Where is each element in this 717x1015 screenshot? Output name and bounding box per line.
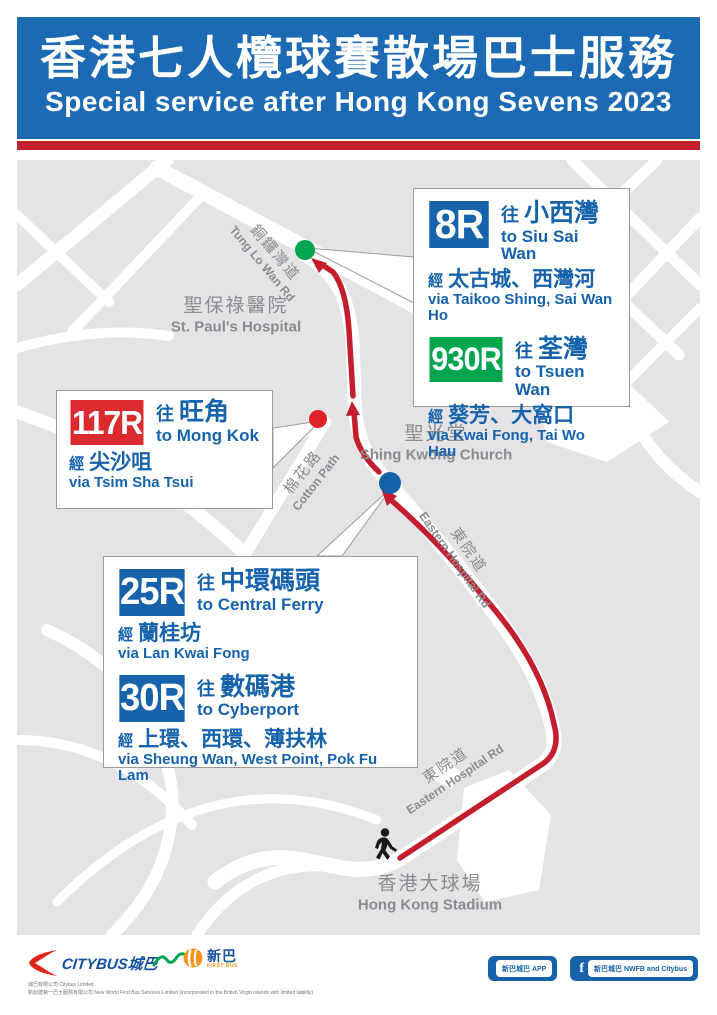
place-label-hong-kong-stadium: 香港大球場 Hong Kong Stadium	[358, 874, 502, 915]
citybus-swoosh-icon	[28, 949, 58, 977]
page-subtitle: Special service after Hong Kong Sevens 2…	[17, 86, 700, 118]
stop-dot-cotton-path	[309, 410, 327, 428]
destination-en: to Siu Sai Wan	[501, 228, 615, 263]
via-en: via Kwai Fong, Tai Wo Hau	[428, 428, 615, 460]
firstbus-logo-en: FIRST BUS	[207, 964, 238, 969]
fine-print: 城巴有限公司 Citybus Limited 新創建第一巴士服務有限公司 New…	[28, 981, 313, 997]
route-badge-117r: 117R	[71, 400, 144, 445]
route-badge-30r: 30R	[119, 675, 184, 722]
stop-dot-tung-lo-wan	[295, 240, 315, 260]
stop-dot-eastern-hospital	[379, 472, 401, 494]
header-red-bar	[17, 141, 700, 150]
destination-zh: 中環碼頭	[220, 567, 320, 595]
via-zh: 上環、西環、薄扶林	[138, 728, 327, 751]
callout-box-8r-930r: 8R 往小西灣 to Siu Sai Wan 經太古城、西灣河 via Taik…	[413, 188, 630, 407]
route-entry-930r: 930R 往荃灣 to Tsuen Wan 經葵芳、大窩口 via Kwai F…	[428, 337, 615, 460]
social-button[interactable]: f 新巴城巴 NWFB and Citybus	[570, 956, 698, 981]
firstbus-logo: 新巴 FIRST BUS	[152, 946, 238, 972]
destination-en: to Central Ferry	[197, 596, 324, 613]
firstbus-logo-zh: 新巴	[207, 949, 238, 963]
via-en: via Sheung Wan, West Point, Pok Fu Lam	[118, 752, 403, 784]
app-button[interactable]: 新巴城巴 APP	[488, 956, 557, 981]
route-entry-25r: 25R 往中環碼頭 to Central Ferry 經蘭桂坊 via Lan …	[118, 569, 403, 662]
route-badge-8r: 8R	[429, 201, 489, 248]
via-zh: 尖沙咀	[89, 451, 152, 474]
poster: 香港七人欖球賽散場巴士服務 Special service after Hong…	[0, 0, 717, 1015]
place-label-st-pauls-hospital: 聖保祿醫院 St. Paul's Hospital	[171, 296, 301, 337]
social-button-label: 新巴城巴 NWFB and Citybus	[588, 960, 693, 977]
firstbus-wave-icon	[152, 946, 204, 972]
header: 香港七人欖球賽散場巴士服務 Special service after Hong…	[17, 17, 700, 139]
via-en: via Taikoo Shing, Sai Wan Ho	[428, 292, 615, 324]
via-zh: 蘭桂坊	[138, 622, 201, 645]
callout-box-117r: 117R 往旺角 to Mong Kok 經尖沙咀 via Tsim Sha T…	[56, 390, 273, 509]
fine-print-nwfb: 新創建第一巴士服務有限公司 New World First Bus Servic…	[28, 989, 313, 997]
via-zh: 葵芳、大窩口	[448, 404, 574, 427]
via-en: via Lan Kwai Fong	[118, 646, 403, 662]
fine-print-citybus: 城巴有限公司 Citybus Limited	[28, 981, 313, 989]
via-zh: 太古城、西灣河	[448, 268, 595, 291]
destination-zh: 數碼港	[220, 673, 295, 701]
page-title: 香港七人欖球賽散場巴士服務	[17, 32, 700, 85]
citybus-logo-text: CITYBUS城巴	[61, 953, 159, 974]
app-button-label: 新巴城巴 APP	[496, 960, 552, 977]
via-en: via Tsim Sha Tsui	[69, 475, 260, 491]
destination-zh: 小西灣	[524, 199, 599, 227]
route-entry-8r: 8R 往小西灣 to Siu Sai Wan 經太古城、西灣河 via Taik…	[428, 201, 615, 324]
route-entry-30r: 30R 往數碼港 to Cyberport 經上環、西環、薄扶林 via She…	[118, 675, 403, 784]
destination-zh: 荃灣	[538, 335, 588, 363]
callout-box-25r-30r: 25R 往中環碼頭 to Central Ferry 經蘭桂坊 via Lan …	[103, 556, 418, 768]
route-badge-25r: 25R	[119, 569, 184, 616]
citybus-logo: CITYBUS城巴	[28, 949, 158, 977]
destination-en: to Tsuen Wan	[515, 363, 615, 398]
route-badge-930r: 930R	[430, 337, 503, 382]
facebook-icon: f	[579, 961, 584, 977]
route-entry-117r: 117R 往旺角 to Mong Kok 經尖沙咀 via Tsim Sha T…	[69, 400, 260, 491]
destination-zh: 旺角	[179, 398, 229, 426]
destination-en: to Mong Kok	[156, 427, 259, 444]
destination-en: to Cyberport	[197, 701, 299, 718]
